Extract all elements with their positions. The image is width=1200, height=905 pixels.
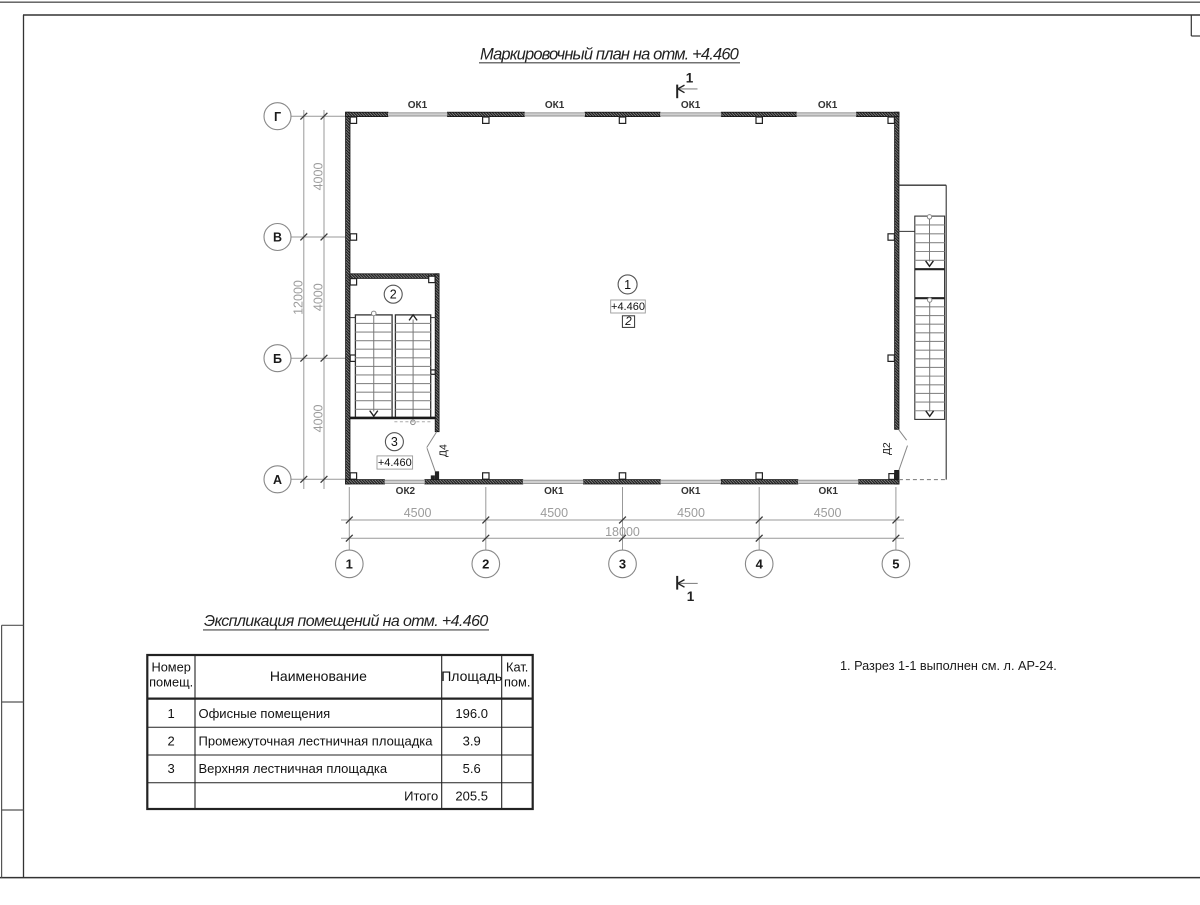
svg-text:4500: 4500 (814, 506, 842, 520)
svg-text:1: 1 (624, 278, 631, 292)
svg-text:2: 2 (168, 733, 175, 748)
svg-text:Итого: Итого (404, 788, 438, 803)
svg-text:Г: Г (274, 110, 281, 124)
svg-text:+4.460: +4.460 (611, 301, 645, 313)
svg-text:ОК1: ОК1 (818, 486, 838, 497)
svg-text:Д2: Д2 (881, 442, 893, 455)
svg-text:ОК2: ОК2 (396, 486, 416, 497)
svg-text:Наименование: Наименование (270, 668, 367, 684)
svg-text:3: 3 (168, 761, 175, 776)
svg-text:А: А (273, 473, 282, 487)
svg-text:4500: 4500 (677, 506, 705, 520)
svg-text:12000: 12000 (292, 280, 306, 315)
svg-text:196.0: 196.0 (455, 706, 488, 721)
svg-text:Д4: Д4 (437, 444, 449, 457)
svg-text:4500: 4500 (404, 506, 432, 520)
svg-text:Офисные помещения: Офисные помещения (199, 706, 331, 721)
svg-text:4000: 4000 (312, 163, 326, 191)
svg-text:2: 2 (624, 316, 632, 328)
svg-text:Промежуточная лестничная площа: Промежуточная лестничная площадка (199, 733, 434, 748)
svg-text:пом.: пом. (504, 675, 530, 690)
svg-text:2: 2 (482, 557, 489, 572)
svg-text:3.9: 3.9 (463, 733, 481, 748)
svg-text:В: В (273, 231, 282, 245)
svg-text:ОК1: ОК1 (544, 486, 564, 497)
svg-text:Верхняя лестничная площадка: Верхняя лестничная площадка (199, 761, 388, 776)
svg-text:4500: 4500 (540, 506, 568, 520)
svg-text:3: 3 (619, 557, 626, 572)
svg-text:1: 1 (687, 589, 695, 604)
svg-text:5.6: 5.6 (463, 761, 481, 776)
svg-text:2: 2 (390, 288, 397, 302)
svg-text:Экспликация помещений на отм.: Экспликация помещений на отм. +4.460 (204, 613, 488, 630)
svg-text:205.5: 205.5 (455, 788, 488, 803)
svg-text:+4.460: +4.460 (378, 457, 412, 469)
svg-text:1. Разрез 1-1 выполнен см. л.: 1. Разрез 1-1 выполнен см. л. АР-24. (840, 659, 1057, 673)
svg-text:1: 1 (686, 71, 694, 86)
svg-text:помещ.: помещ. (149, 675, 193, 690)
svg-text:ОК1: ОК1 (681, 486, 701, 497)
svg-text:3: 3 (391, 435, 398, 449)
svg-text:4: 4 (756, 557, 764, 572)
svg-text:18000: 18000 (605, 525, 640, 539)
svg-text:ОК1: ОК1 (408, 100, 428, 111)
svg-text:Кат.: Кат. (506, 660, 528, 675)
svg-text:4000: 4000 (312, 404, 326, 432)
svg-text:Маркировочный план на отм. +4.: Маркировочный план на отм. +4.460 (480, 46, 740, 64)
svg-text:1: 1 (346, 557, 353, 572)
svg-text:ОК1: ОК1 (545, 100, 565, 111)
svg-text:1: 1 (168, 706, 175, 721)
svg-text:Б: Б (273, 352, 282, 366)
svg-text:4000: 4000 (312, 283, 326, 311)
svg-text:Номер: Номер (151, 660, 190, 675)
svg-text:ОК1: ОК1 (818, 100, 838, 111)
svg-text:ОК1: ОК1 (681, 100, 701, 111)
svg-text:5: 5 (892, 557, 899, 572)
svg-text:Площадь: Площадь (441, 668, 502, 684)
